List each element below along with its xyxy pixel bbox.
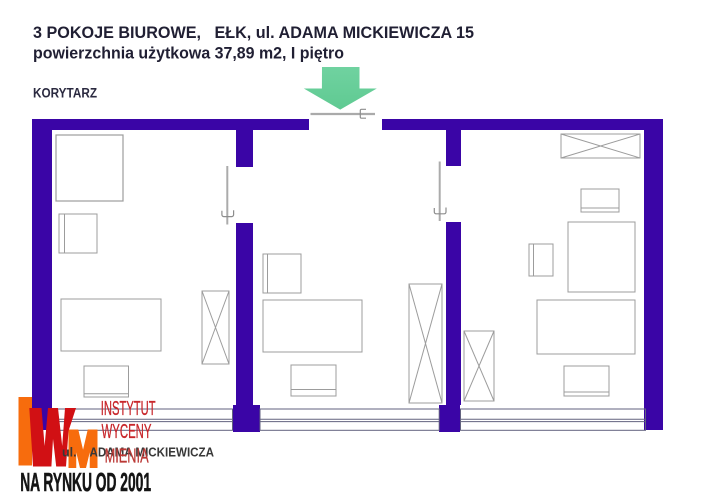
svg-text:powierzchnia użytkowa 37,89 m2: powierzchnia użytkowa 37,89 m2, I piętro [33, 44, 344, 63]
svg-text:KORYTARZ: KORYTARZ [33, 86, 97, 101]
svg-text:INSTYTUT: INSTYTUT [101, 397, 156, 420]
svg-text:NA RYNKU OD 2001: NA RYNKU OD 2001 [20, 469, 151, 497]
svg-text:MIENIA: MIENIA [105, 445, 149, 468]
svg-text:3 POKOJE BIUROWE, EŁK, ul. A: 3 POKOJE BIUROWE, EŁK, ul. ADAMA MICKIEW… [33, 23, 474, 42]
svg-text:WYCENY: WYCENY [102, 420, 152, 443]
svg-text:ul.: ul. [62, 445, 77, 459]
